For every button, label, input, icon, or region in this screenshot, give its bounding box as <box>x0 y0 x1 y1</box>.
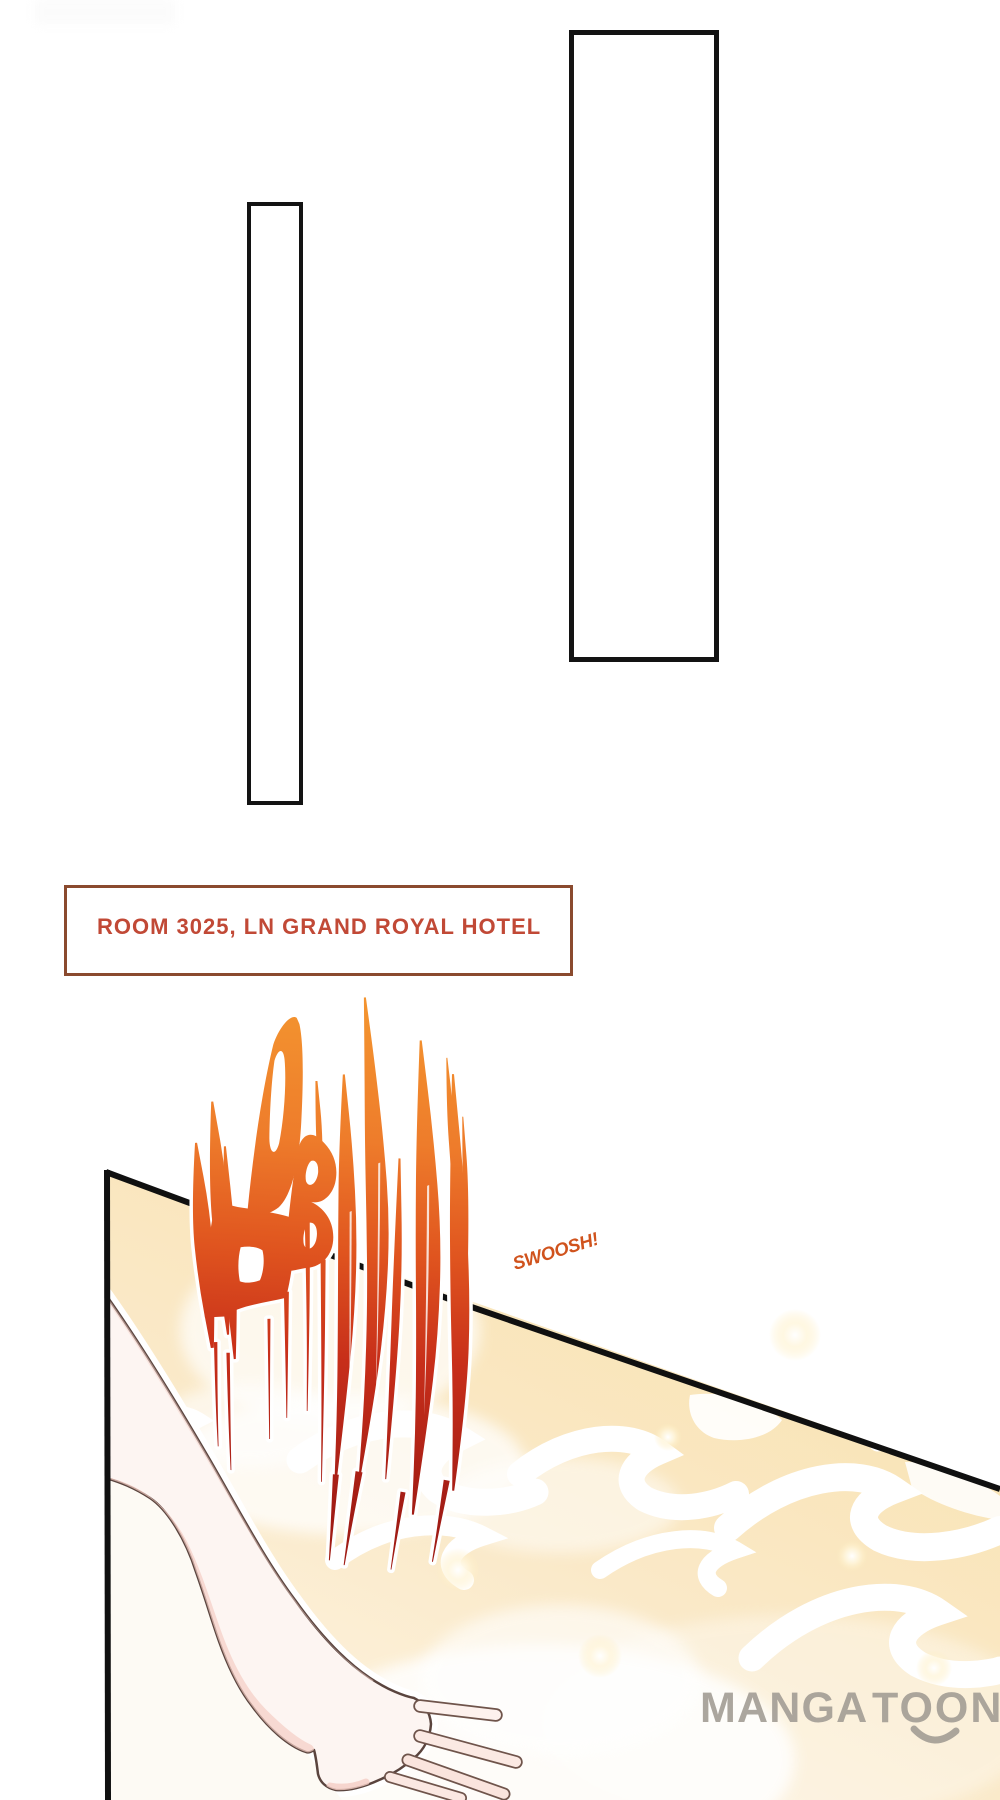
svg-text:TOON: TOON <box>872 1684 1000 1732</box>
svg-text:SWOOSH!: SWOOSH! <box>510 1228 601 1274</box>
svg-text:MANGA: MANGA <box>700 1684 868 1732</box>
